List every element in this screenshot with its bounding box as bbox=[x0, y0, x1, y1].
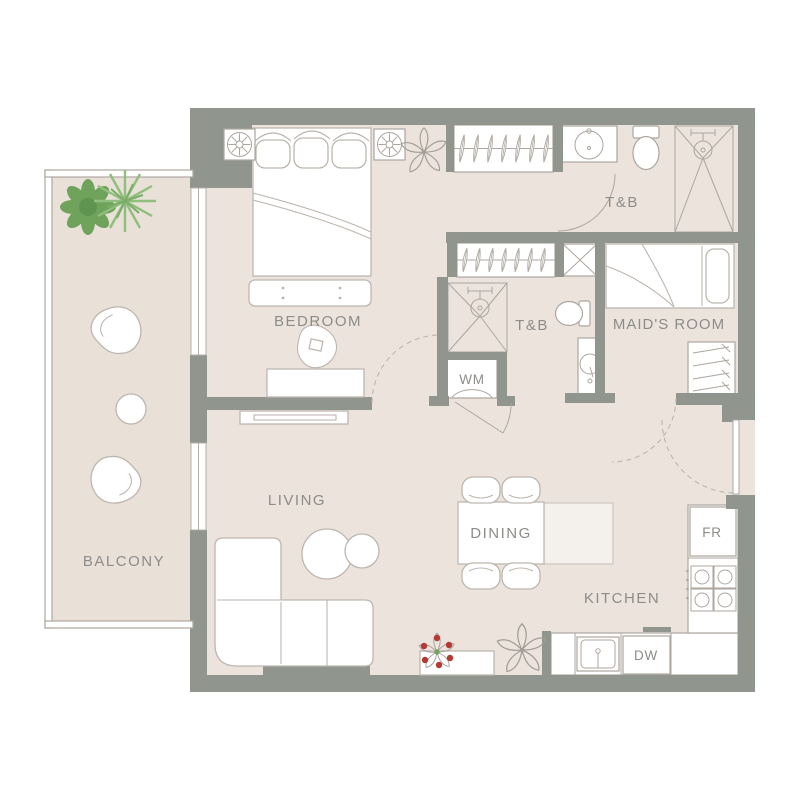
closet-shelves-icon bbox=[688, 342, 735, 394]
entry-door-leaf bbox=[733, 420, 739, 494]
maids-room-label: MAID'S ROOM bbox=[613, 316, 725, 333]
wardrobe-hangers-icon bbox=[457, 243, 555, 277]
coffee-table-icon bbox=[302, 529, 352, 579]
dining-chair-icon bbox=[462, 563, 500, 589]
living-label: LIVING bbox=[268, 492, 326, 509]
bed-bench-icon bbox=[249, 280, 371, 306]
kitchen-sink-icon bbox=[577, 637, 619, 671]
window bbox=[191, 443, 206, 530]
nightstand-lamp-icon bbox=[374, 129, 405, 160]
bath-main-label: T&B bbox=[605, 194, 639, 211]
dining-label: DINING bbox=[470, 525, 532, 542]
toilet-icon bbox=[633, 126, 659, 170]
desk-icon bbox=[267, 369, 364, 397]
dw-label: DW bbox=[634, 648, 658, 663]
wardrobe-hangers-icon bbox=[454, 125, 553, 172]
nightstand-lamp-icon bbox=[224, 129, 255, 160]
wm-label: WM bbox=[459, 372, 485, 387]
fr-label: FR bbox=[702, 525, 722, 540]
bath-second-label: T&B bbox=[515, 317, 549, 334]
floor-plan-page: BEDROOM LIVING BALCONY DINING KITCHEN MA… bbox=[0, 0, 800, 800]
washbasin-icon bbox=[562, 126, 617, 162]
balcony-label: BALCONY bbox=[83, 553, 165, 570]
tv-console-icon bbox=[240, 411, 348, 424]
counter-handle bbox=[643, 627, 671, 632]
single-bed-icon bbox=[606, 244, 734, 308]
floor-plan-svg: BEDROOM LIVING BALCONY DINING KITCHEN MA… bbox=[0, 0, 800, 800]
coffee-table-icon bbox=[345, 534, 379, 568]
round-table-icon bbox=[116, 394, 146, 424]
shaft-icon bbox=[563, 244, 597, 276]
console-table-icon bbox=[420, 651, 494, 675]
kitchen-label: KITCHEN bbox=[584, 590, 660, 607]
dining-chair-icon bbox=[462, 477, 500, 503]
toilet-icon bbox=[556, 301, 591, 326]
bedroom-label: BEDROOM bbox=[274, 313, 362, 330]
window bbox=[191, 188, 206, 355]
dining-chair-icon bbox=[502, 477, 540, 503]
double-bed-icon bbox=[253, 128, 371, 276]
dining-chair-icon bbox=[502, 563, 540, 589]
dining-table-extension bbox=[543, 503, 613, 564]
